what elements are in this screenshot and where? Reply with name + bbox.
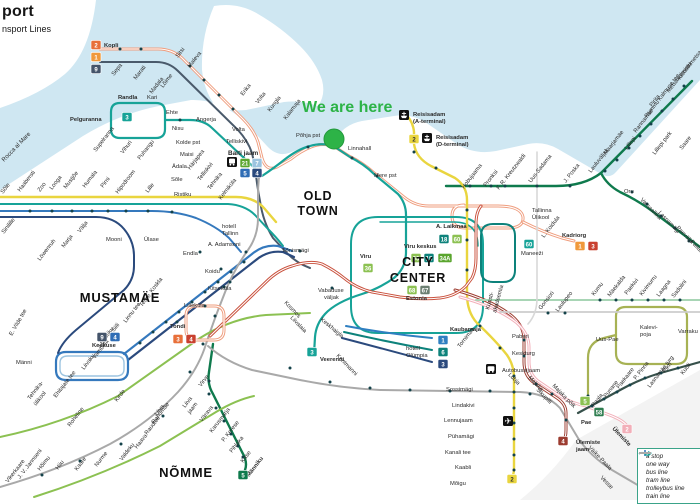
map-label: Lillepi park (652, 131, 674, 157)
stop-dot (165, 321, 168, 324)
ship-icon (422, 133, 432, 143)
map-label: Linnu tee (123, 302, 142, 324)
route-badge: 1 (91, 52, 101, 61)
map-label: Lasnamäe turg (647, 355, 676, 389)
route-badge-number: 21 (242, 161, 249, 167)
stop-dot (547, 312, 550, 315)
stop-dot (140, 48, 143, 51)
route-badge: 3 (307, 347, 317, 356)
legend: a stopone waybus linetram linetrolleybus… (637, 448, 700, 504)
map-label: Keskhaigla (319, 317, 345, 340)
map-label: Nisu (172, 126, 184, 132)
line-bus-60-loop (481, 224, 515, 282)
map-label: Vihuri (120, 140, 134, 155)
stop-dot (369, 387, 372, 390)
map-label: Pallasti (689, 239, 700, 257)
map-label: Kaubamaja (450, 327, 482, 333)
stop-dot (647, 299, 650, 302)
map-label: Estonia (406, 296, 428, 302)
train-icon (227, 157, 237, 167)
stop-dot (214, 315, 217, 318)
legend-item-label: train line (646, 493, 670, 500)
stop-dot (551, 393, 554, 396)
stop-dot (650, 123, 653, 126)
map-label: Pae (581, 420, 592, 426)
stop-dot (179, 119, 182, 122)
route-badge: 3 (173, 334, 183, 343)
map-label: Lindakivi (452, 403, 475, 409)
stop-dot (217, 281, 220, 284)
stop-dot (171, 211, 174, 214)
map-label: Kentmanni (335, 353, 359, 377)
legend-item-label: trolleybus line (646, 485, 685, 492)
map-label: Paberi (512, 334, 529, 340)
route-badge: 7 (252, 158, 262, 167)
we-are-here-label: We are here (302, 99, 393, 116)
stop-dot (91, 210, 94, 213)
route-badge: 3 (438, 359, 448, 368)
map-label: A. Adamsoni (208, 242, 241, 248)
map-label: Autobussijaam (502, 368, 540, 374)
stop-dot (220, 268, 223, 271)
route-badge: 9 (97, 332, 107, 341)
stop-dot (119, 48, 122, 51)
map-label: Vabaduse (318, 288, 344, 294)
district-label: TOWN (297, 204, 338, 218)
map-label: Oru (624, 189, 634, 195)
stop-dot (189, 371, 192, 374)
stop-dot (243, 261, 246, 264)
stop-dot (565, 419, 568, 422)
stop-dot (245, 251, 248, 254)
stop-dot (178, 311, 181, 314)
map-label: Mõigu (450, 481, 466, 487)
map-label: Lilleküla (184, 303, 206, 309)
map-title: port nsport Lines (2, 4, 51, 34)
stop-dot (29, 210, 32, 213)
stop-dot (513, 469, 516, 472)
map-label: Zoo (37, 182, 48, 194)
stop-dot (672, 98, 675, 101)
map-label: Kadriorg (562, 233, 587, 239)
route-badge: 60 (452, 234, 462, 243)
stop-dot (466, 269, 469, 272)
stop-dot (661, 110, 664, 113)
map-label: Kaabli (455, 465, 471, 471)
map-label: Nurme (94, 451, 109, 468)
stop-dot (289, 367, 292, 370)
map-label: Uus-Sadama (528, 153, 554, 184)
map-label: Telliskivi (197, 162, 215, 182)
route-badge: 60 (524, 239, 534, 248)
legend-item-label: one way (646, 461, 669, 468)
map-label: Koidu (205, 269, 220, 275)
map-label: Tehnika (207, 171, 225, 191)
line-bus-yellow-west (0, 197, 276, 222)
stop-dot (208, 393, 211, 396)
stop-dot (499, 347, 502, 350)
stop-dot (599, 299, 602, 302)
stop-dot (230, 271, 233, 274)
route-badge: 1 (438, 335, 448, 344)
stop-dot (513, 391, 516, 394)
stop-dot (513, 407, 516, 410)
line-tram-2-pae-core (460, 297, 627, 426)
stop-dot (683, 85, 686, 88)
map-label: (A-terminal) (413, 119, 446, 125)
stop-dot (569, 185, 572, 188)
stop-dot (466, 239, 469, 242)
map-label: Löwenruh (37, 238, 57, 262)
route-badge: 2 (622, 424, 632, 433)
map-label: Sinilille (1, 217, 17, 235)
stop-dot (615, 299, 618, 302)
map-label: Kumu (591, 282, 605, 298)
stop-dot (616, 391, 619, 394)
route-badge: 4 (558, 436, 568, 445)
map-label: Ülemiste (576, 439, 601, 446)
map-label: Marja (61, 234, 75, 250)
map-label: Ülase (144, 236, 159, 243)
stop-dot (307, 146, 310, 149)
map-label: Ädala (172, 163, 188, 170)
map-label: Puhangu (137, 139, 156, 161)
map-label: Pühamägi (448, 434, 474, 440)
route-badge: 58 (594, 407, 604, 416)
route-badge: 21 (240, 158, 250, 167)
map-label: Ristiku (174, 192, 191, 198)
legend-item: bus line (643, 468, 700, 476)
stop-dot (202, 343, 205, 346)
map-label: Pirni (100, 176, 112, 189)
map-label: Laulupeo (555, 291, 574, 313)
stop-dot (663, 299, 666, 302)
map-label: Uus-Pae (596, 337, 619, 343)
map-label: Punane (603, 380, 620, 399)
route-badge-number: 34A (439, 256, 451, 262)
stop-dot (215, 407, 218, 410)
map-label: Tondi (170, 324, 186, 330)
stop-dot (644, 377, 647, 380)
stop-dot (147, 210, 150, 213)
map-label: Maneeži (521, 251, 543, 257)
map-label: Kalevi- (640, 325, 658, 331)
stop-dot (529, 393, 532, 396)
map-label: Humala (82, 169, 100, 189)
map-label: Põhja pst (296, 133, 321, 139)
route-badge: 4 (186, 334, 196, 343)
map-label: Kitseküla (208, 286, 232, 292)
route-badge: 5 (238, 470, 248, 479)
route-badge: 2 (409, 134, 419, 143)
route-badge: 5 (580, 396, 590, 405)
line-bus-manniku (209, 344, 247, 470)
map-label: A. Laikmaa (436, 224, 467, 230)
stop-dot (604, 170, 607, 173)
stop-dot (677, 367, 680, 370)
stop-dot (639, 135, 642, 138)
legend-item: one way (643, 460, 700, 468)
route-badge: 4 (252, 168, 262, 177)
route-badge: 67 (420, 285, 430, 294)
route-badge-number: 60 (526, 242, 533, 248)
stop-dot (229, 281, 232, 284)
route-badge: 5 (240, 168, 250, 177)
route-badge-number: 36 (365, 266, 372, 272)
district-label: MUSTAMÄE (80, 290, 161, 305)
legend-item: trolleybus line (643, 484, 700, 492)
map-label: Viru (360, 254, 372, 260)
map-label: Varraku (678, 329, 698, 335)
bus-icon (486, 364, 496, 374)
map-label: Männiku (246, 456, 265, 479)
legend-item-label: tram line (646, 477, 670, 484)
route-badge: 3 (122, 112, 132, 121)
map-label: (D-terminal) (436, 142, 469, 148)
stop-dot (564, 312, 567, 315)
stop-dot (679, 299, 682, 302)
map-label: Ülikool (532, 214, 549, 221)
legend-item: tram line (643, 476, 700, 484)
stop-dot (616, 159, 619, 162)
stop-dot (199, 251, 202, 254)
map-label: Volta (232, 127, 246, 133)
route-badge: 2 (507, 474, 517, 483)
route-badge-number: 68 (409, 288, 416, 294)
district-label: CENTER (390, 271, 446, 285)
map-label: Kopli (104, 43, 119, 49)
map-label: Sadolini (671, 279, 688, 299)
route-badge-number: 67 (422, 288, 429, 294)
map-title-line2: nsport Lines (2, 25, 51, 34)
map-label: Telliskivi (226, 139, 247, 145)
transit-map: KopliRandlaKariPelgurannaEhteNisuKolde p… (0, 0, 700, 500)
map-label: Sõle (171, 177, 183, 183)
stop-dot (51, 210, 54, 213)
route-badge: 18 (439, 234, 449, 243)
stop-dot (629, 384, 632, 387)
stop-dot (466, 209, 469, 212)
route-badge-number: 18 (441, 237, 448, 243)
stop-dot (41, 474, 44, 477)
stop-dot (204, 291, 207, 294)
route-badge: 6 (438, 347, 448, 356)
route-badge: 4 (110, 332, 120, 341)
map-label: Randla (118, 95, 138, 101)
map-label: Ehte (166, 110, 178, 116)
map-label: Saare (679, 135, 693, 151)
route-badge: 3 (588, 241, 598, 250)
stop-dot (152, 331, 155, 334)
stop-dot (513, 438, 516, 441)
airport-icon: ✈ (503, 416, 513, 427)
map-label: Tallinn (222, 231, 238, 237)
map-label: Paekivi (624, 278, 640, 296)
map-label: E. Vilde tee (9, 308, 29, 337)
map-label: Reisisadam (436, 135, 468, 141)
map-label: Välja (77, 220, 90, 234)
map-label: hotell (406, 346, 420, 352)
route-badge: 1 (575, 241, 585, 250)
stop-dot (232, 108, 235, 111)
route-badge: 9 (91, 64, 101, 73)
map-label: Mooni (106, 237, 122, 243)
stop-dot (218, 94, 221, 97)
map-label: Linnahall (348, 146, 371, 152)
stop-dot (631, 299, 634, 302)
stop-dot (329, 381, 332, 384)
stop-dot (489, 390, 492, 393)
map-label: Kaare (74, 456, 88, 472)
district-label: CITY (402, 255, 434, 269)
map-label: Mäekalda (607, 274, 628, 298)
stop-dot (435, 167, 438, 170)
map-label: Lille (145, 182, 156, 194)
district-label: NÕMME (159, 465, 213, 480)
map-label: Endla (183, 251, 199, 257)
stop-dot (71, 210, 74, 213)
map-label: Maisi (180, 152, 194, 158)
map-label: Pelguranna (70, 117, 102, 123)
route-badge-number: 60 (454, 237, 461, 243)
stop-dot (125, 210, 128, 213)
map-label: väljak (324, 295, 339, 301)
legend-item-label: bus line (646, 469, 668, 476)
route-badge-number: 58 (596, 410, 603, 416)
map-label: J. Poska (563, 162, 582, 184)
stop-dot (351, 157, 354, 160)
stop-dot (413, 151, 416, 154)
map-label: Keskturg (512, 351, 535, 357)
map-label: Pihlaka (229, 435, 246, 454)
stop-dot (409, 389, 412, 392)
route-badge: 34A (438, 253, 452, 262)
transit-map-page: KopliRandlaKariPelgurannaEhteNisuKolde p… (0, 0, 700, 500)
route-badge: 68 (407, 285, 417, 294)
map-label: Viru keskus (404, 244, 436, 250)
ship-icon (399, 110, 409, 120)
map-label: Hipodroom (115, 169, 137, 195)
map-label: Mere pst (374, 173, 397, 179)
map-title-line1: port (2, 4, 51, 20)
stop-dot (536, 185, 539, 188)
route-badge: 36 (363, 263, 373, 272)
we-are-here-dot (324, 129, 344, 149)
stop-dot (107, 210, 110, 213)
route-badge: 2 (91, 40, 101, 49)
map-label: Varsaallika (639, 197, 663, 222)
map-label: Balti jaam (228, 150, 259, 157)
map-label: Lennujaam (444, 418, 473, 424)
map-label: Tallinna (532, 208, 552, 214)
map-label: Sossimägi (446, 387, 473, 393)
map-label: Angerja (196, 117, 217, 123)
map-label: hotell (222, 224, 236, 230)
map-label: Olümpia (406, 353, 428, 359)
district-labels: MUSTAMÄENÕMMEOLDTOWNCITYCENTER (80, 189, 446, 480)
map-label: Kanali tee (445, 450, 471, 456)
stop-dot (513, 454, 516, 457)
stop-dot (139, 342, 142, 345)
district-label: OLD (304, 189, 333, 203)
map-label: Kolde pst (176, 140, 201, 146)
map-label: Looga (49, 174, 64, 191)
map-label: Supelranna (93, 126, 116, 154)
legend-item: train line (643, 492, 700, 500)
line-tram-2-pae (460, 297, 627, 426)
map-label: poja (640, 332, 652, 338)
stop-dot (120, 443, 123, 446)
svg-text:✈: ✈ (504, 417, 511, 427)
map-label: Tõnismägi (282, 248, 309, 254)
map-label: Männi (16, 360, 32, 366)
map-label: Kari (147, 95, 157, 101)
map-label: Reisisadam (413, 112, 445, 118)
stop-dot (203, 79, 206, 82)
map-label: Mustjõe (63, 171, 80, 191)
